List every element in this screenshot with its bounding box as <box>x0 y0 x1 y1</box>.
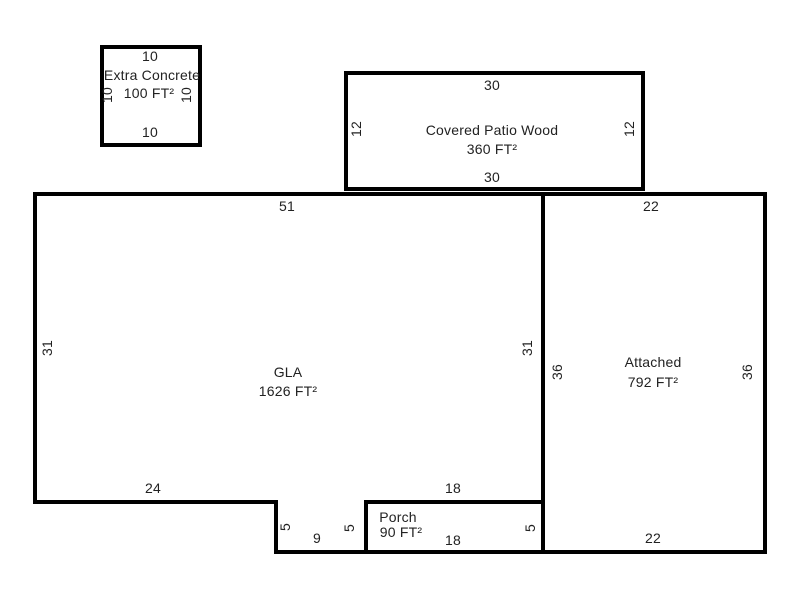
attached-dim-right: 36 <box>740 364 754 380</box>
gla-dim-notch-bottom: 9 <box>313 531 321 545</box>
extra-concrete-dim-top: 10 <box>142 49 158 63</box>
gla-dim-notch-left: 5 <box>278 523 292 531</box>
extra-concrete-dim-left: 10 <box>100 87 114 103</box>
labels-layer: 10Extra Concrete100 FT²1010103012Covered… <box>0 0 800 600</box>
extra-concrete-dim-bottom: 10 <box>142 125 158 139</box>
gla-dim-left: 31 <box>40 340 54 356</box>
extra-concrete-area: 100 FT² <box>124 86 174 100</box>
attached-dim-top: 22 <box>643 199 659 213</box>
covered-patio-dim-left: 12 <box>349 121 363 137</box>
porch-area: 90 FT² <box>380 525 422 539</box>
gla-dim-bottom-left: 24 <box>145 481 161 495</box>
floorplan-sketch: 10Extra Concrete100 FT²1010103012Covered… <box>0 0 800 600</box>
gla-dim-right: 31 <box>520 340 534 356</box>
covered-patio-dim-bottom: 30 <box>484 170 500 184</box>
gla-dim-bottom-right: 18 <box>445 481 461 495</box>
attached-area: 792 FT² <box>628 375 678 389</box>
porch-dim-bottom: 18 <box>445 533 461 547</box>
attached-title: Attached <box>625 355 682 369</box>
attached-dim-bottom: 22 <box>645 531 661 545</box>
gla-title: GLA <box>274 365 303 379</box>
porch-title: Porch <box>379 510 417 524</box>
extra-concrete-dim-right: 10 <box>179 87 193 103</box>
covered-patio-dim-top: 30 <box>484 78 500 92</box>
porch-dim-right: 5 <box>523 524 537 532</box>
covered-patio-area: 360 FT² <box>467 142 517 156</box>
gla-dim-top: 51 <box>279 199 295 213</box>
gla-area: 1626 FT² <box>259 384 317 398</box>
attached-dim-left: 36 <box>550 364 564 380</box>
extra-concrete-title: Extra Concrete <box>104 68 200 82</box>
covered-patio-dim-right: 12 <box>622 121 636 137</box>
gla-dim-notch-right: 5 <box>342 524 356 532</box>
covered-patio-title: Covered Patio Wood <box>426 123 559 137</box>
